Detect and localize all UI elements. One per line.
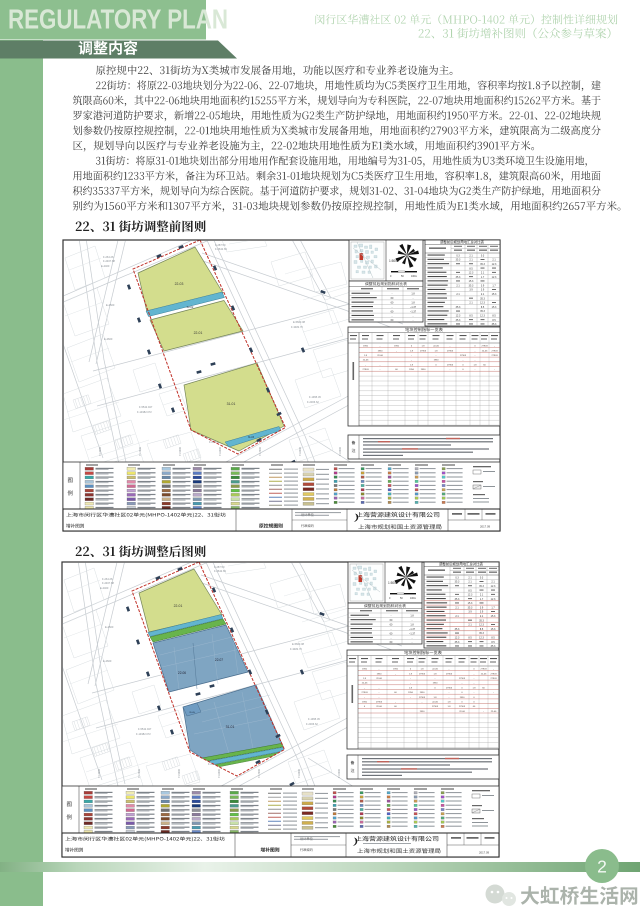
svg-text:Y-16000: Y-16000: [218, 769, 221, 778]
svg-text:27903: 27903: [420, 350, 427, 352]
svg-text:Y-19000: Y-19000: [339, 447, 342, 456]
svg-text:12.3: 12.3: [480, 302, 485, 305]
svg-text:12.3: 12.3: [468, 594, 473, 597]
svg-text:31-05: 31-05: [189, 712, 195, 714]
svg-text:F-2306.62: F-2306.62: [306, 722, 318, 726]
svg-text:1950: 1950: [420, 692, 426, 694]
svg-text:35.3: 35.3: [455, 628, 460, 631]
svg-text:12.3: 12.3: [492, 276, 497, 279]
svg-text:E-2400: E-2400: [100, 586, 109, 590]
svg-text:F-3482.76: F-3482.76: [291, 325, 303, 329]
svg-text:E-5603.08: E-5603.08: [292, 642, 305, 646]
svg-text:35.3: 35.3: [456, 276, 461, 279]
svg-text:22-02: 22-02: [187, 305, 194, 309]
svg-text:27903: 27903: [376, 702, 383, 704]
svg-text:1950: 1950: [363, 346, 369, 348]
svg-text:35.3: 35.3: [456, 259, 461, 262]
svg-text:F-3482.76: F-3482.76: [290, 647, 302, 651]
svg-text:1950: 1950: [362, 669, 368, 671]
svg-text:1950: 1950: [408, 692, 414, 694]
svg-text:2: 2: [597, 857, 607, 877]
svg-text:12.3: 12.3: [492, 263, 497, 266]
svg-text:15.3: 15.3: [491, 628, 496, 631]
svg-text:22-06: 22-06: [363, 360, 369, 362]
svg-text:E-2500: E-2500: [106, 303, 115, 307]
svg-text:~1.37: ~1.37: [410, 310, 417, 313]
svg-text:1950: 1950: [434, 360, 440, 362]
svg-text:1950: 1950: [420, 711, 426, 713]
svg-text:22-06: 22-06: [362, 683, 368, 685]
svg-text:Y-18000: Y-18000: [299, 447, 302, 456]
svg-text:Y-16000: Y-16000: [219, 447, 222, 456]
svg-text:35.3: 35.3: [491, 645, 496, 648]
svg-text:Y-14000: Y-14000: [138, 769, 141, 778]
svg-text:1950: 1950: [421, 369, 427, 371]
svg-text:31-03: 31-03: [248, 436, 255, 439]
svg-text:Y-14000: Y-14000: [139, 447, 142, 456]
svg-text:27903: 27903: [459, 706, 466, 708]
svg-text:22-06: 22-06: [377, 355, 383, 357]
svg-text:35.3: 35.3: [492, 323, 497, 326]
svg-text:F-1995.45: F-1995.45: [309, 395, 321, 399]
svg-text:12.3: 12.3: [456, 315, 461, 318]
svg-text:1:5000: 1:5000: [389, 259, 399, 263]
svg-text:35.3: 35.3: [455, 641, 460, 644]
svg-text:22-06: 22-06: [459, 711, 465, 713]
svg-text:1950: 1950: [409, 369, 415, 371]
svg-text:100m: 100m: [410, 597, 416, 600]
svg-text:F-287.50: F-287.50: [214, 565, 225, 569]
svg-text:15.3: 15.3: [492, 306, 497, 309]
svg-text:22-06: 22-06: [376, 706, 382, 708]
svg-text:27903: 27903: [432, 706, 439, 708]
svg-text:E-2400: E-2400: [101, 264, 110, 268]
svg-text:22-07: 22-07: [215, 658, 223, 662]
svg-text:REGULATORY PLAN: REGULATORY PLAN: [8, 4, 228, 35]
svg-text:35.3: 35.3: [479, 585, 484, 588]
svg-text:F-1995.45: F-1995.45: [308, 717, 320, 721]
svg-text:27903: 27903: [419, 673, 426, 675]
svg-text:F-2467.68: F-2467.68: [102, 581, 114, 585]
svg-text:F-2642.69: F-2642.69: [214, 569, 226, 573]
svg-text:12.3: 12.3: [479, 637, 484, 640]
svg-text:22-06: 22-06: [491, 711, 497, 713]
svg-text:22-01: 22-01: [194, 331, 203, 335]
svg-text:1950: 1950: [394, 346, 400, 348]
svg-text:~1.37: ~1.37: [410, 306, 417, 309]
svg-text:22-06: 22-06: [433, 346, 439, 348]
svg-text:27903: 27903: [361, 692, 368, 694]
svg-text:E-2600: E-2600: [104, 337, 113, 341]
svg-text:~1.37: ~1.37: [409, 628, 416, 631]
svg-text:35.3: 35.3: [480, 297, 485, 300]
svg-text:35.3: 35.3: [480, 263, 485, 266]
svg-text:Y-17000: Y-17000: [259, 447, 262, 456]
svg-text:F-5542.947: F-5542.947: [139, 405, 153, 409]
svg-text:27903: 27903: [460, 355, 467, 357]
svg-text:27903: 27903: [490, 678, 497, 680]
svg-text:12.3: 12.3: [480, 315, 485, 318]
svg-text:Y-18000: Y-18000: [298, 769, 301, 778]
svg-text:35.3: 35.3: [479, 619, 484, 622]
svg-text:~1.37: ~1.37: [409, 632, 416, 635]
svg-text:Y-15000: Y-15000: [178, 769, 181, 778]
svg-text:Y-13000: Y-13000: [98, 769, 101, 778]
svg-text:F-2306.62: F-2306.62: [307, 400, 319, 404]
svg-text:1950: 1950: [378, 350, 384, 352]
svg-text:2017.09: 2017.09: [480, 525, 491, 529]
svg-text:12.3: 12.3: [455, 637, 460, 640]
svg-text:F-14982.072: F-14982.072: [136, 732, 151, 736]
svg-text:27903: 27903: [459, 678, 466, 680]
svg-text:1950: 1950: [460, 697, 466, 699]
svg-text:31-01: 31-01: [226, 725, 235, 729]
svg-text:F-2467.68: F-2467.68: [103, 259, 115, 263]
svg-text:22-06: 22-06: [481, 673, 487, 675]
svg-text:27903: 27903: [491, 355, 498, 357]
svg-text:27903: 27903: [490, 673, 497, 675]
svg-text:27903: 27903: [362, 369, 369, 371]
svg-text:15.3: 15.3: [469, 280, 474, 283]
svg-text:31-01: 31-01: [227, 402, 236, 406]
svg-text:F-14982.072: F-14982.072: [137, 410, 152, 414]
svg-text:E-2600: E-2600: [103, 659, 112, 663]
svg-text:15.3: 15.3: [491, 615, 496, 618]
svg-text:2017.09: 2017.09: [479, 851, 490, 855]
svg-text:1950: 1950: [393, 669, 399, 671]
svg-text:Y-17000: Y-17000: [258, 769, 261, 778]
svg-text:27903: 27903: [447, 364, 454, 366]
svg-text:F-2642.69: F-2642.69: [215, 247, 227, 251]
svg-text:35.3: 35.3: [455, 598, 460, 601]
svg-text:100m: 100m: [411, 275, 417, 278]
svg-text:22-03: 22-03: [175, 282, 184, 286]
svg-text:Y-13000: Y-13000: [99, 447, 102, 456]
svg-text:27903: 27903: [419, 697, 426, 699]
svg-text:22-06: 22-06: [432, 669, 438, 671]
svg-text:35.3: 35.3: [456, 306, 461, 309]
svg-text:22-06: 22-06: [178, 671, 186, 675]
svg-text:F-287.50: F-287.50: [215, 243, 226, 247]
svg-text:Y-19000: Y-19000: [338, 769, 341, 778]
svg-text:27903: 27903: [480, 669, 487, 671]
svg-text:27903: 27903: [481, 346, 488, 348]
svg-text:27903: 27903: [446, 687, 453, 689]
svg-text:35.3: 35.3: [456, 319, 461, 322]
svg-text:35.3: 35.3: [455, 581, 460, 584]
svg-text:15.3: 15.3: [492, 293, 497, 296]
svg-text:E-2500: E-2500: [105, 625, 114, 629]
svg-text:22-06: 22-06: [482, 350, 488, 352]
svg-text:1950: 1950: [377, 673, 383, 675]
svg-text:35.3: 35.3: [469, 285, 474, 288]
svg-text:1950: 1950: [433, 683, 439, 685]
svg-text:F-264.26: F-264.26: [103, 255, 114, 259]
svg-text:22-06: 22-06: [376, 678, 382, 680]
svg-text:27903: 27903: [491, 350, 498, 352]
svg-text:1:5000: 1:5000: [388, 581, 398, 585]
svg-text:35.3: 35.3: [480, 310, 485, 313]
svg-text:35.3: 35.3: [479, 632, 484, 635]
svg-text:12.3: 12.3: [479, 624, 484, 627]
svg-text:12.3: 12.3: [469, 272, 474, 275]
svg-text:E-5603.08: E-5603.08: [293, 320, 306, 324]
svg-text:22-06: 22-06: [432, 702, 438, 704]
svg-text:F-264.26: F-264.26: [102, 577, 113, 581]
svg-text:Y-15000: Y-15000: [179, 447, 182, 456]
svg-text:F-5542.947: F-5542.947: [138, 727, 152, 731]
svg-text:35.3: 35.3: [468, 607, 473, 610]
svg-text:1950: 1950: [362, 702, 368, 704]
svg-text:22-01: 22-01: [174, 604, 183, 608]
svg-text:12.3: 12.3: [491, 598, 496, 601]
svg-text:12.3: 12.3: [491, 585, 496, 588]
svg-text:27903: 27903: [446, 673, 453, 675]
svg-text:27903: 27903: [447, 350, 454, 352]
svg-text:15.3: 15.3: [468, 602, 473, 605]
